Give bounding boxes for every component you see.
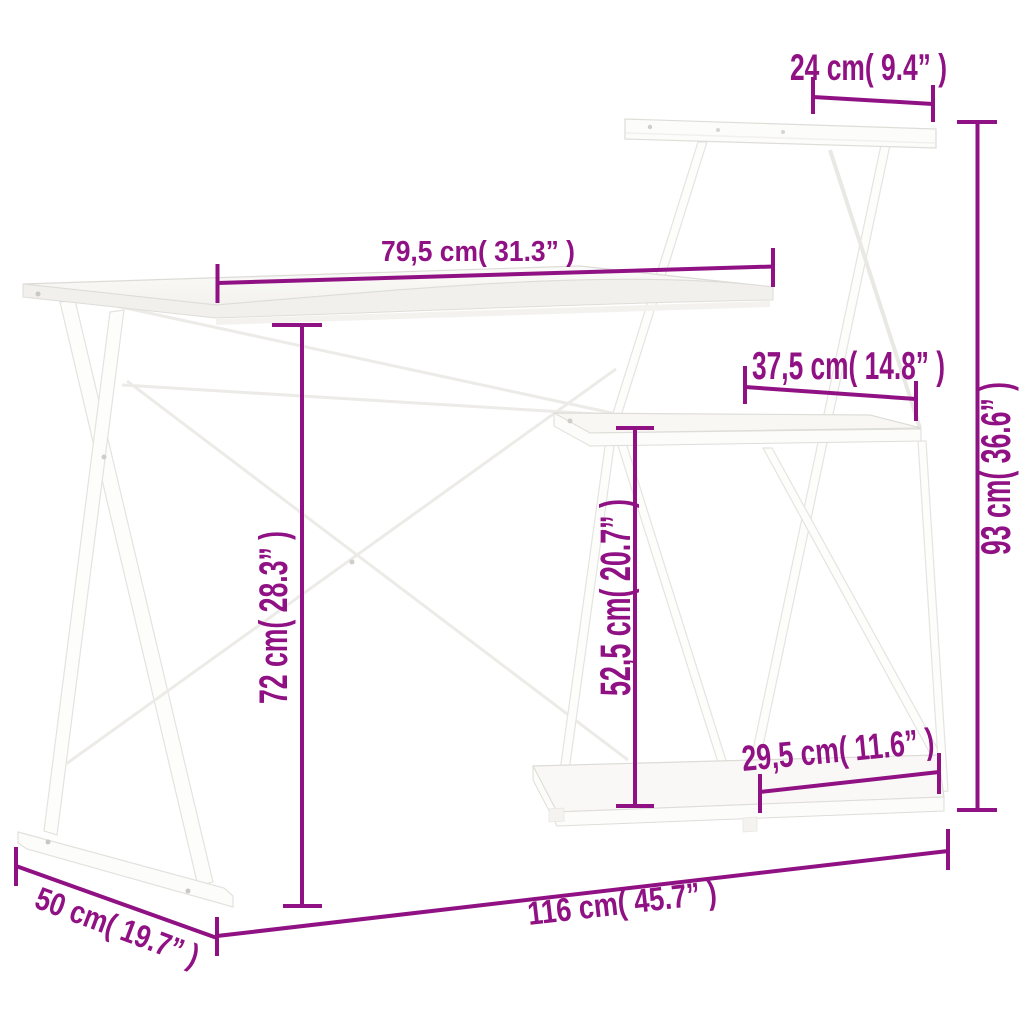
svg-text:37,5 cm( 14.8” ): 37,5 cm( 14.8” ) <box>752 345 945 388</box>
svg-text:93 cm( 36.6” ): 93 cm( 36.6” ) <box>972 382 1019 555</box>
svg-text:24 cm( 9.4” ): 24 cm( 9.4” ) <box>790 47 947 88</box>
svg-text:72 cm( 28.3” ): 72 cm( 28.3” ) <box>252 531 296 704</box>
svg-text:52,5 cm( 20.7” ): 52,5 cm( 20.7” ) <box>592 499 640 696</box>
svg-text:79,5 cm( 31.3” ): 79,5 cm( 31.3” ) <box>381 236 575 268</box>
